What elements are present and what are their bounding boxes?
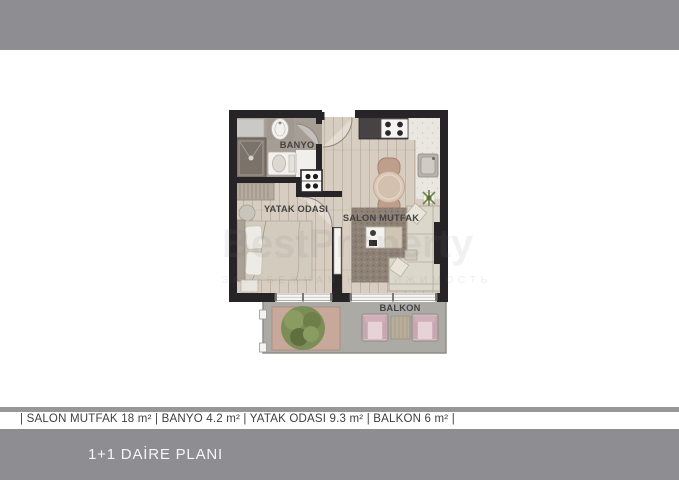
room-label-salon-mutfak: SALON MUTFAK: [343, 213, 419, 223]
balcony-armchair-right: [412, 314, 438, 341]
washing-machine: [236, 119, 264, 137]
railing-post: [260, 310, 267, 319]
bed: [237, 220, 312, 281]
railing-post: [260, 343, 267, 352]
balcony-armchair-left: [362, 314, 388, 341]
coffee-table: [366, 227, 402, 248]
balcony-table: [391, 316, 410, 339]
tree: [281, 306, 325, 350]
plan-title: 1+1 DAİRE PLANI: [88, 446, 223, 463]
bedroom-window: [275, 293, 332, 302]
room-label-balkon: BALKON: [380, 303, 421, 313]
page: BANYO YATAK ODASI SALON MUTFAK BALKON Be…: [0, 0, 679, 480]
bottom-gray-bar: 1+1 DAİRE PLANI: [0, 429, 679, 480]
kitchen-sink: [418, 154, 438, 177]
wardrobe: [236, 183, 274, 200]
room-label-yatak-odasi: YATAK ODASI: [264, 204, 328, 214]
bedside-table: [239, 205, 255, 221]
bathroom-sink: [267, 117, 294, 140]
stove: [381, 119, 408, 138]
room-areas-line: | SALON MUTFAK 18 m² | BANYO 4.2 m² | YA…: [20, 413, 455, 425]
room-label-banyo: BANYO: [280, 140, 315, 150]
boiler-unit: [301, 170, 322, 192]
bed-bench: [241, 280, 258, 292]
divider-line: [0, 407, 679, 412]
toilet: [268, 152, 296, 175]
shower: [236, 138, 266, 178]
dining-set: [374, 158, 405, 214]
balcony-door-window: [350, 293, 437, 302]
bedroom-door-leaf: [334, 228, 341, 274]
